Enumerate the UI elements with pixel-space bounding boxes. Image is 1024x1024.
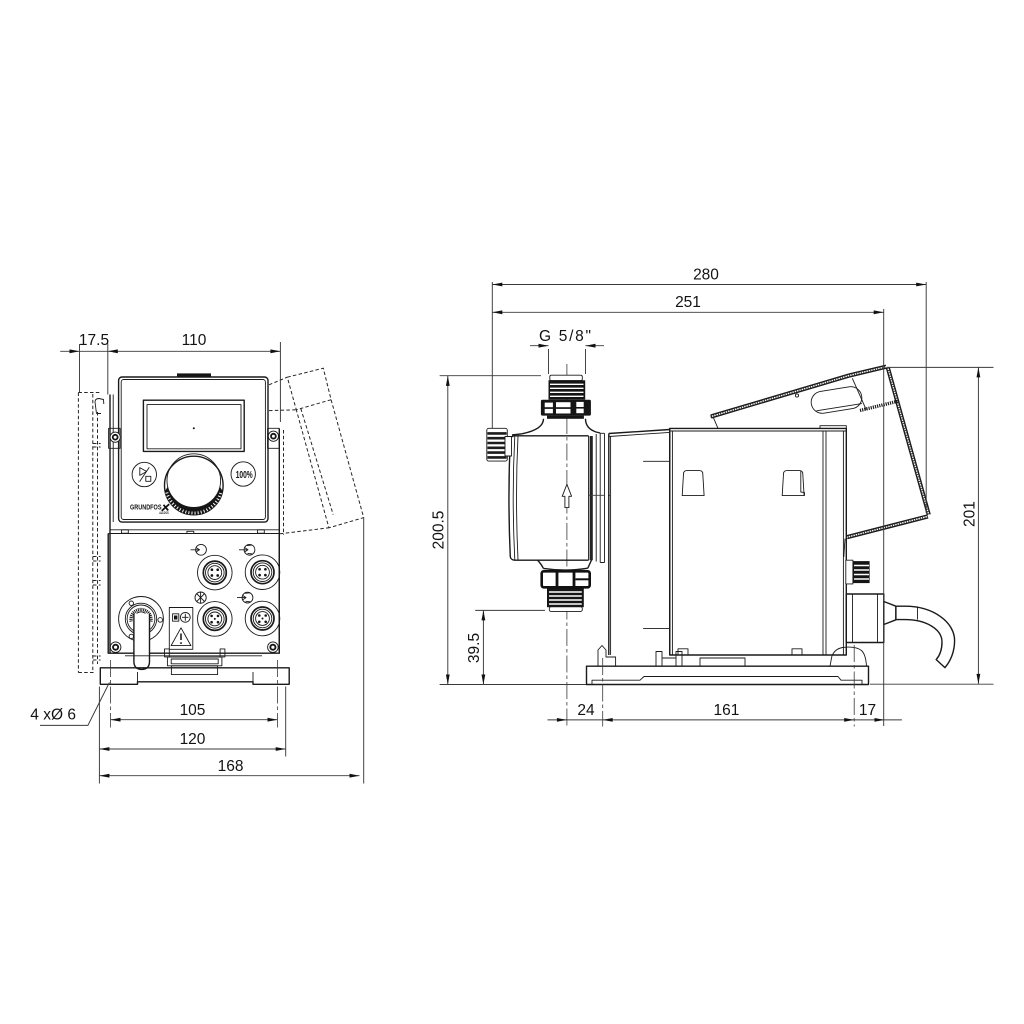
svg-text:120: 120 bbox=[180, 731, 206, 748]
svg-text:161: 161 bbox=[713, 702, 739, 719]
svg-text:4 xØ 6: 4 xØ 6 bbox=[30, 706, 76, 723]
svg-text:100%: 100% bbox=[236, 469, 253, 481]
svg-text:G 5/8": G 5/8" bbox=[539, 328, 591, 345]
svg-text:39.5: 39.5 bbox=[466, 633, 483, 663]
svg-text:17.5: 17.5 bbox=[79, 332, 109, 349]
svg-text:ALLDOS: ALLDOS bbox=[159, 511, 169, 515]
svg-text:280: 280 bbox=[693, 266, 719, 283]
svg-text:200.5: 200.5 bbox=[431, 511, 448, 550]
svg-text:17: 17 bbox=[859, 702, 876, 719]
svg-text:201: 201 bbox=[962, 501, 979, 527]
svg-text:105: 105 bbox=[180, 702, 206, 719]
svg-text:110: 110 bbox=[182, 332, 207, 349]
svg-text:24: 24 bbox=[577, 702, 595, 719]
svg-text:251: 251 bbox=[675, 294, 701, 311]
svg-text:GRUNDFOS: GRUNDFOS bbox=[130, 505, 162, 512]
svg-text:168: 168 bbox=[218, 758, 244, 775]
